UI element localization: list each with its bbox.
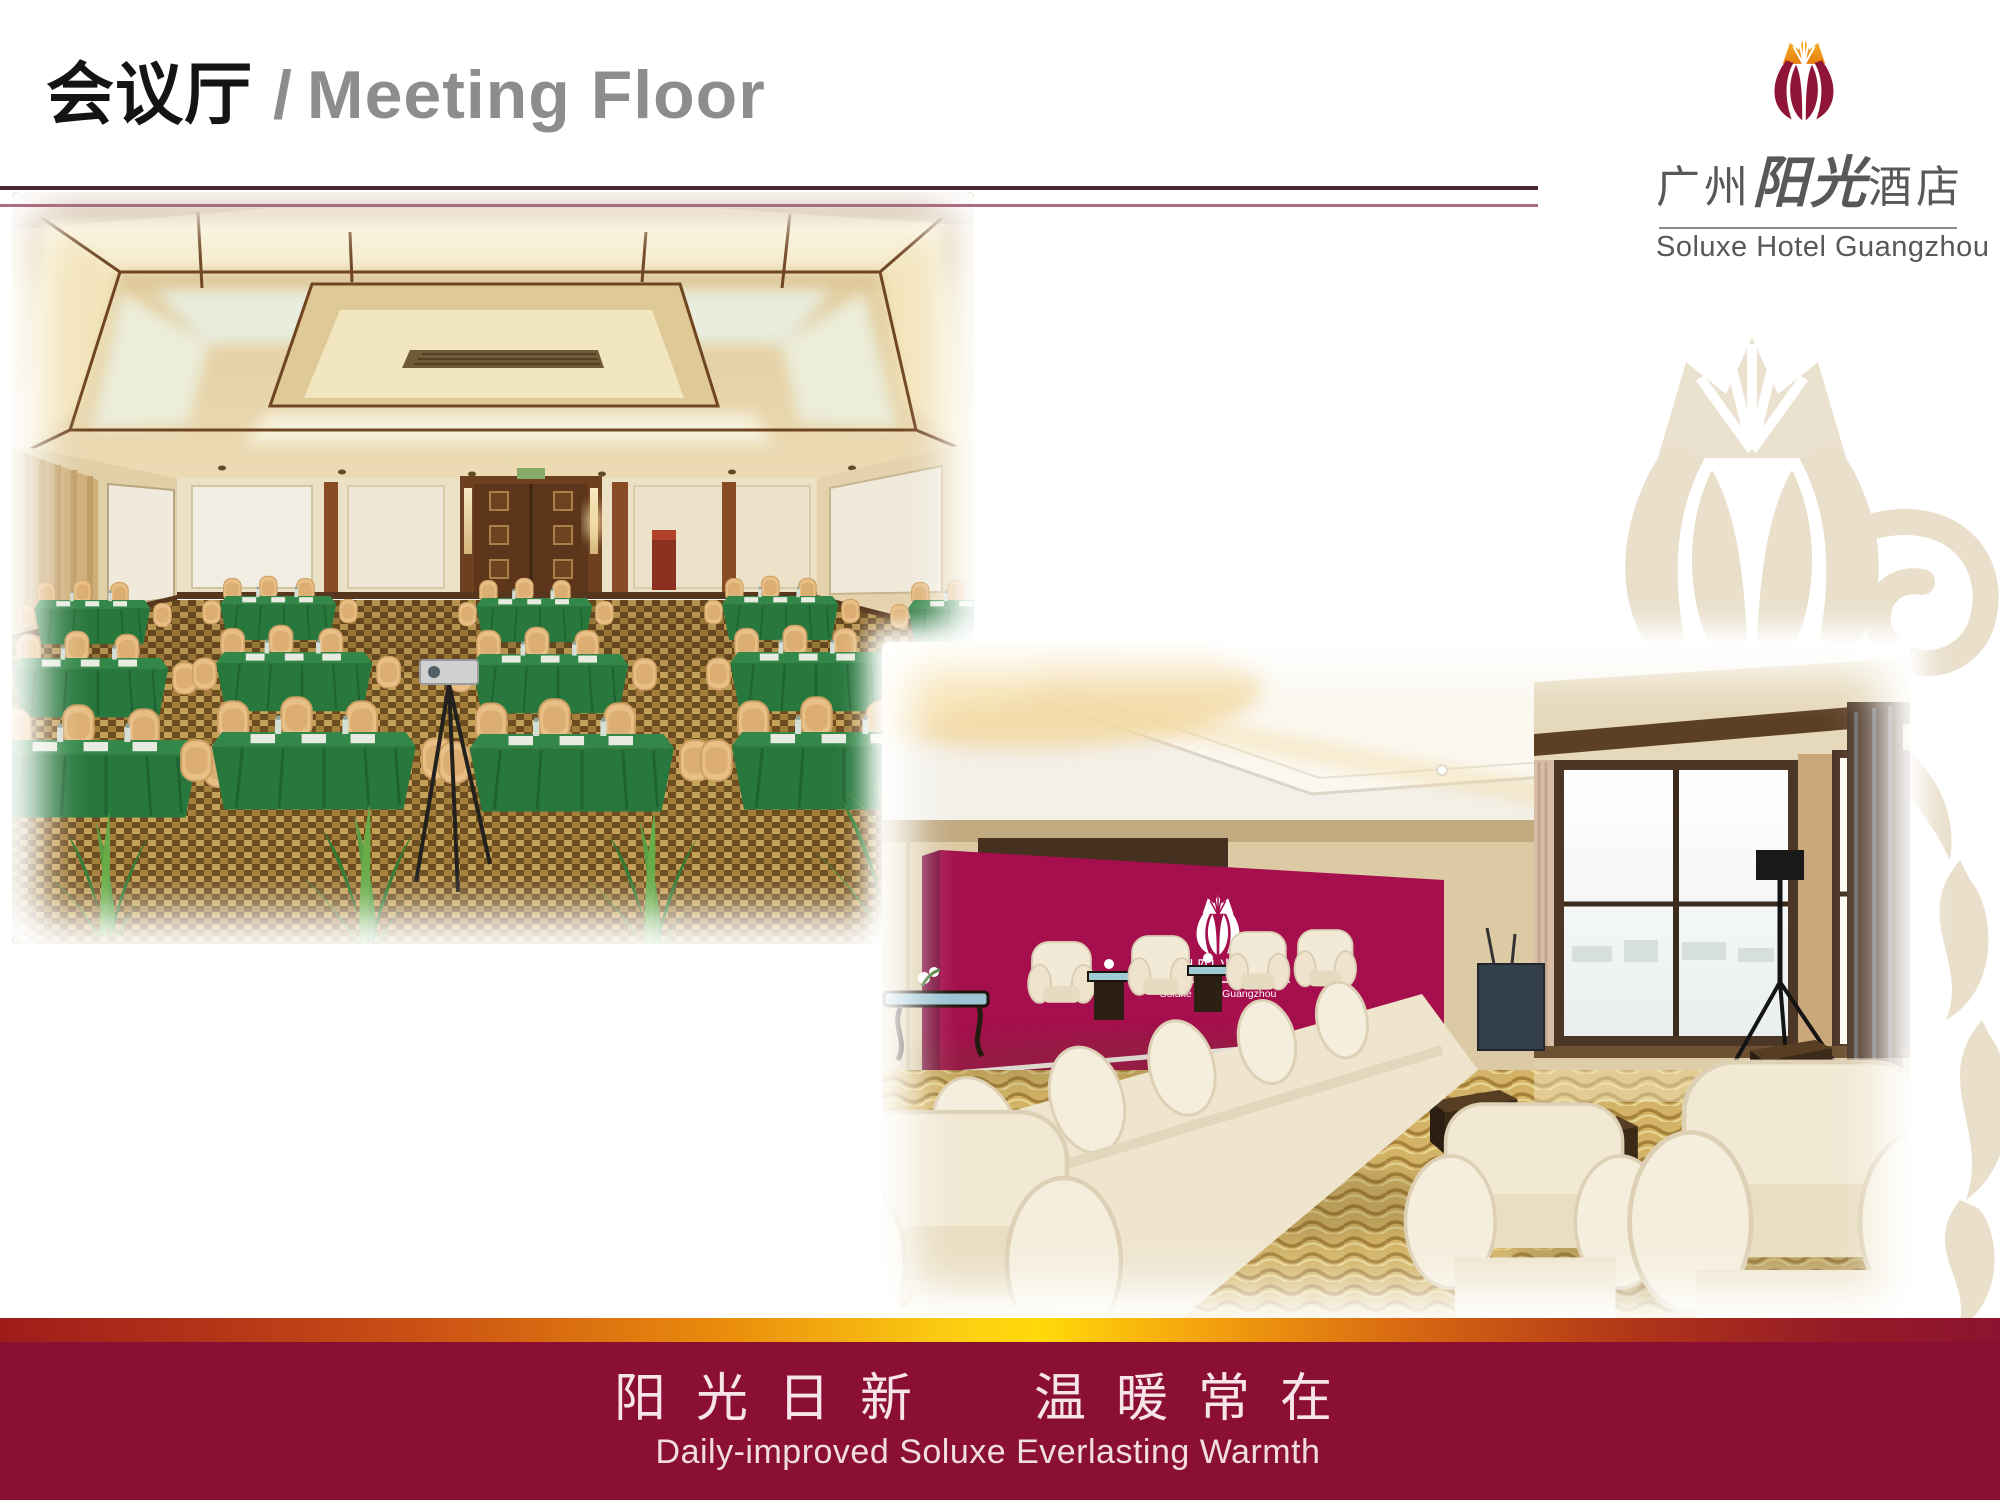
hotel-name-city: 广州 [1656,163,1752,212]
footer-slogan-chinese: 阳光日新 温暖常在 [614,1372,1362,1427]
photo-vip-lounge: 广州阳光酒店 Soluxe Hotel Guangzhou [882,642,1910,1318]
presentation-slide: 会议厅/Meeting Floor 广州阳光酒店 Soluxe Hotel Gu… [0,0,2000,1500]
title-separator: / [273,57,293,133]
hotel-name-chinese: 广州阳光酒店 [1656,138,1960,219]
title-rule-bottom [0,204,1538,207]
title-rule-top [0,186,1538,190]
tulip-logo-icon [1758,34,1850,122]
hotel-name-suffix: 酒店 [1868,163,1964,212]
footer-banner: 阳光日新 温暖常在 Daily-improved Soluxe Everlast… [0,1342,2000,1500]
page-title: 会议厅/Meeting Floor [46,58,766,133]
hotel-name-english: Soluxe Hotel Guangzhou [1656,231,1960,264]
footer-gradient-strip [0,1318,2000,1342]
photo-meeting-room [12,192,974,944]
footer-slogan-cn-1: 阳光日新 [614,1372,942,1427]
hotel-logo-block: 广州阳光酒店 Soluxe Hotel Guangzhou [1656,138,1960,264]
logo-divider-line [1659,227,1957,229]
title-english: Meeting Floor [307,57,766,133]
title-chinese: 会议厅 [46,57,253,133]
footer-slogan-english: Daily-improved Soluxe Everlasting Warmth [656,1433,1321,1472]
footer-slogan-cn-2: 温暖常在 [1034,1372,1362,1427]
hotel-name-script: 阳光 [1752,151,1868,214]
